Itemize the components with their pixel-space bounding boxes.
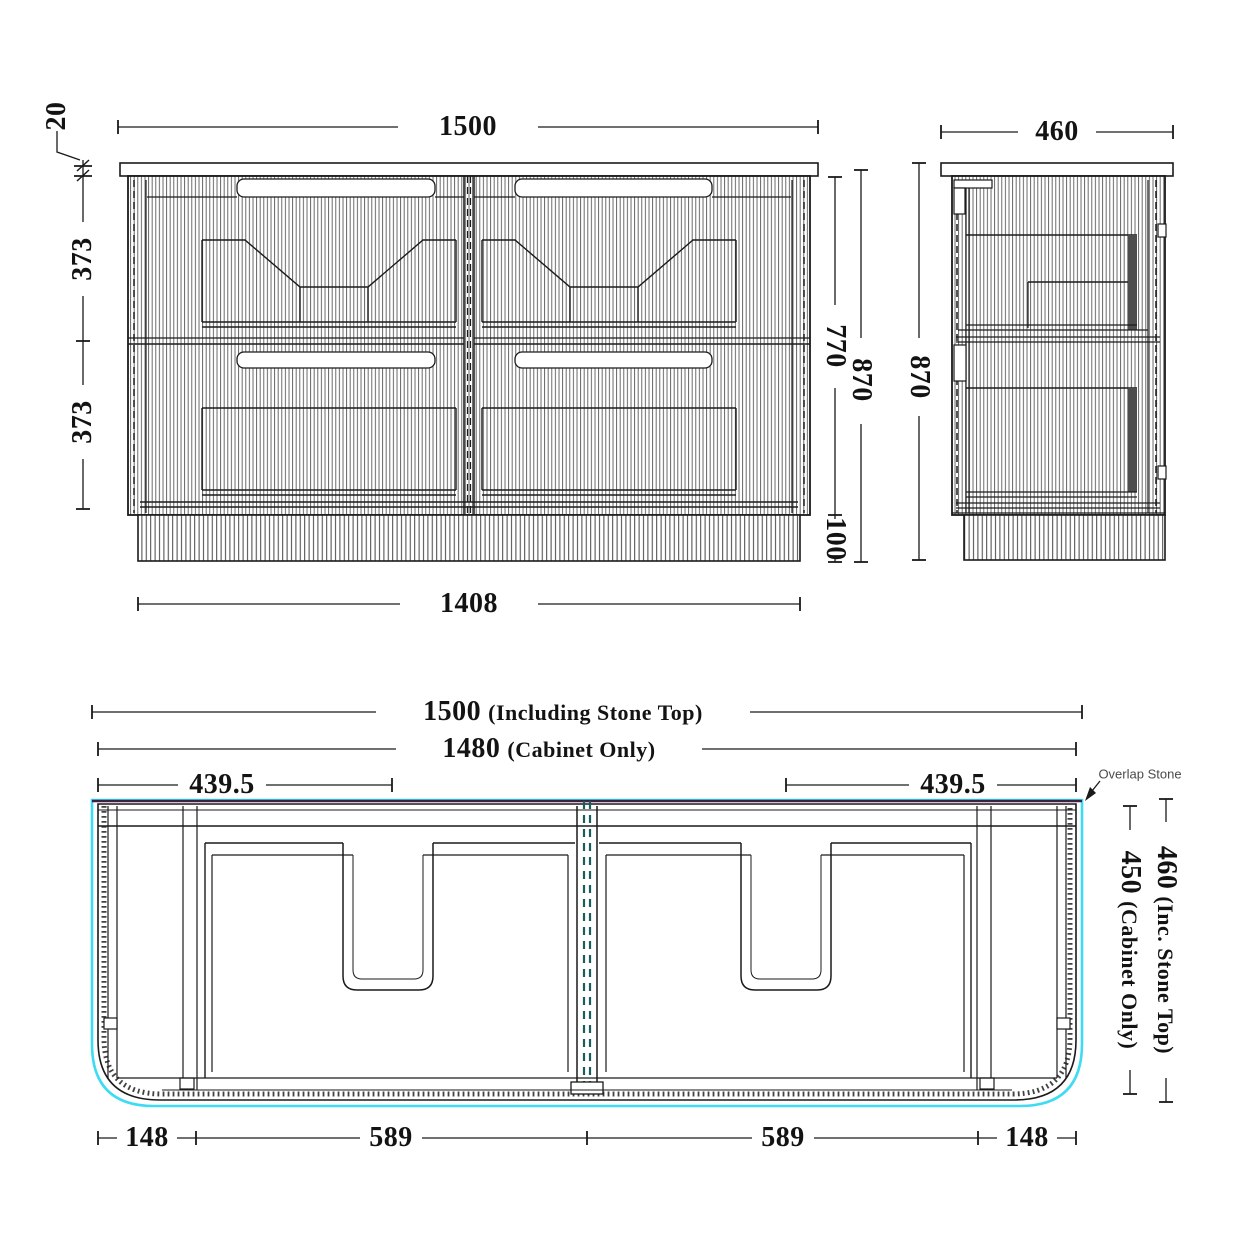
handle-recess: [515, 179, 712, 197]
side-view: [941, 163, 1173, 560]
dim-note: (Including Stone Top): [488, 700, 703, 725]
dim-value: 460: [1151, 846, 1182, 890]
dim-front-overall-width: 1500: [439, 113, 497, 141]
dim-value: 1500: [423, 696, 481, 727]
side-stone-top: [941, 163, 1173, 176]
dim-plan-front-seg-3: 589: [761, 1124, 805, 1152]
dim-front-overall-height: 870: [847, 358, 875, 402]
dim-plan-depth-total: 460(Inc. Stone Top): [1152, 846, 1180, 1054]
dim-front-kickboard-height: 100: [821, 517, 849, 561]
plan-cabinet-outline: [98, 804, 1076, 1100]
dim-front-stone-thickness: 20: [43, 102, 71, 131]
handle-recess: [237, 352, 435, 368]
dim-note: (Inc. Stone Top): [1153, 896, 1178, 1054]
dim-value: 1480: [442, 733, 500, 764]
dim-note: (Cabinet Only): [1117, 901, 1142, 1049]
dim-plan-front-seg-4: 148: [1005, 1124, 1049, 1152]
overlap-stone-label: Overlap Stone: [1098, 768, 1181, 781]
drawing-linework: [0, 0, 1250, 1250]
dim-front-lower-drawer-height: 373: [69, 400, 97, 444]
front-view: [120, 163, 818, 561]
side-kickboard: [964, 515, 1165, 560]
dim-plan-basin-centre-right: 439.5: [920, 771, 986, 799]
dim-plan-overall-width: 1500(Including Stone Top): [423, 698, 703, 726]
front-stone-top: [120, 163, 818, 176]
dim-side-overall-height: 870: [905, 355, 933, 399]
handle-recess: [237, 179, 435, 197]
plan-view: [92, 781, 1100, 1106]
dim-plan-basin-centre-left: 439.5: [189, 771, 255, 799]
handle-recess: [515, 352, 712, 368]
technical-drawing: 1500 20 373 373 1408 770 870 100 460 870…: [0, 0, 1250, 1250]
dim-plan-front-seg-2: 589: [369, 1124, 413, 1152]
dim-value: 450: [1115, 851, 1146, 895]
dim-front-upper-drawer-height: 373: [69, 237, 97, 281]
dim-plan-cabinet-width: 1480(Cabinet Only): [442, 735, 655, 763]
dim-front-cabinet-height: 770: [821, 324, 849, 368]
front-kickboard: [138, 515, 800, 561]
dim-note: (Cabinet Only): [507, 737, 655, 762]
front-cabinet-body: [128, 176, 810, 515]
dim-plan-depth-cabinet: 450(Cabinet Only): [1116, 851, 1144, 1050]
dim-side-depth: 460: [1035, 118, 1079, 146]
dim-plan-front-seg-1: 148: [125, 1124, 169, 1152]
dim-front-kickboard-width: 1408: [440, 590, 498, 618]
